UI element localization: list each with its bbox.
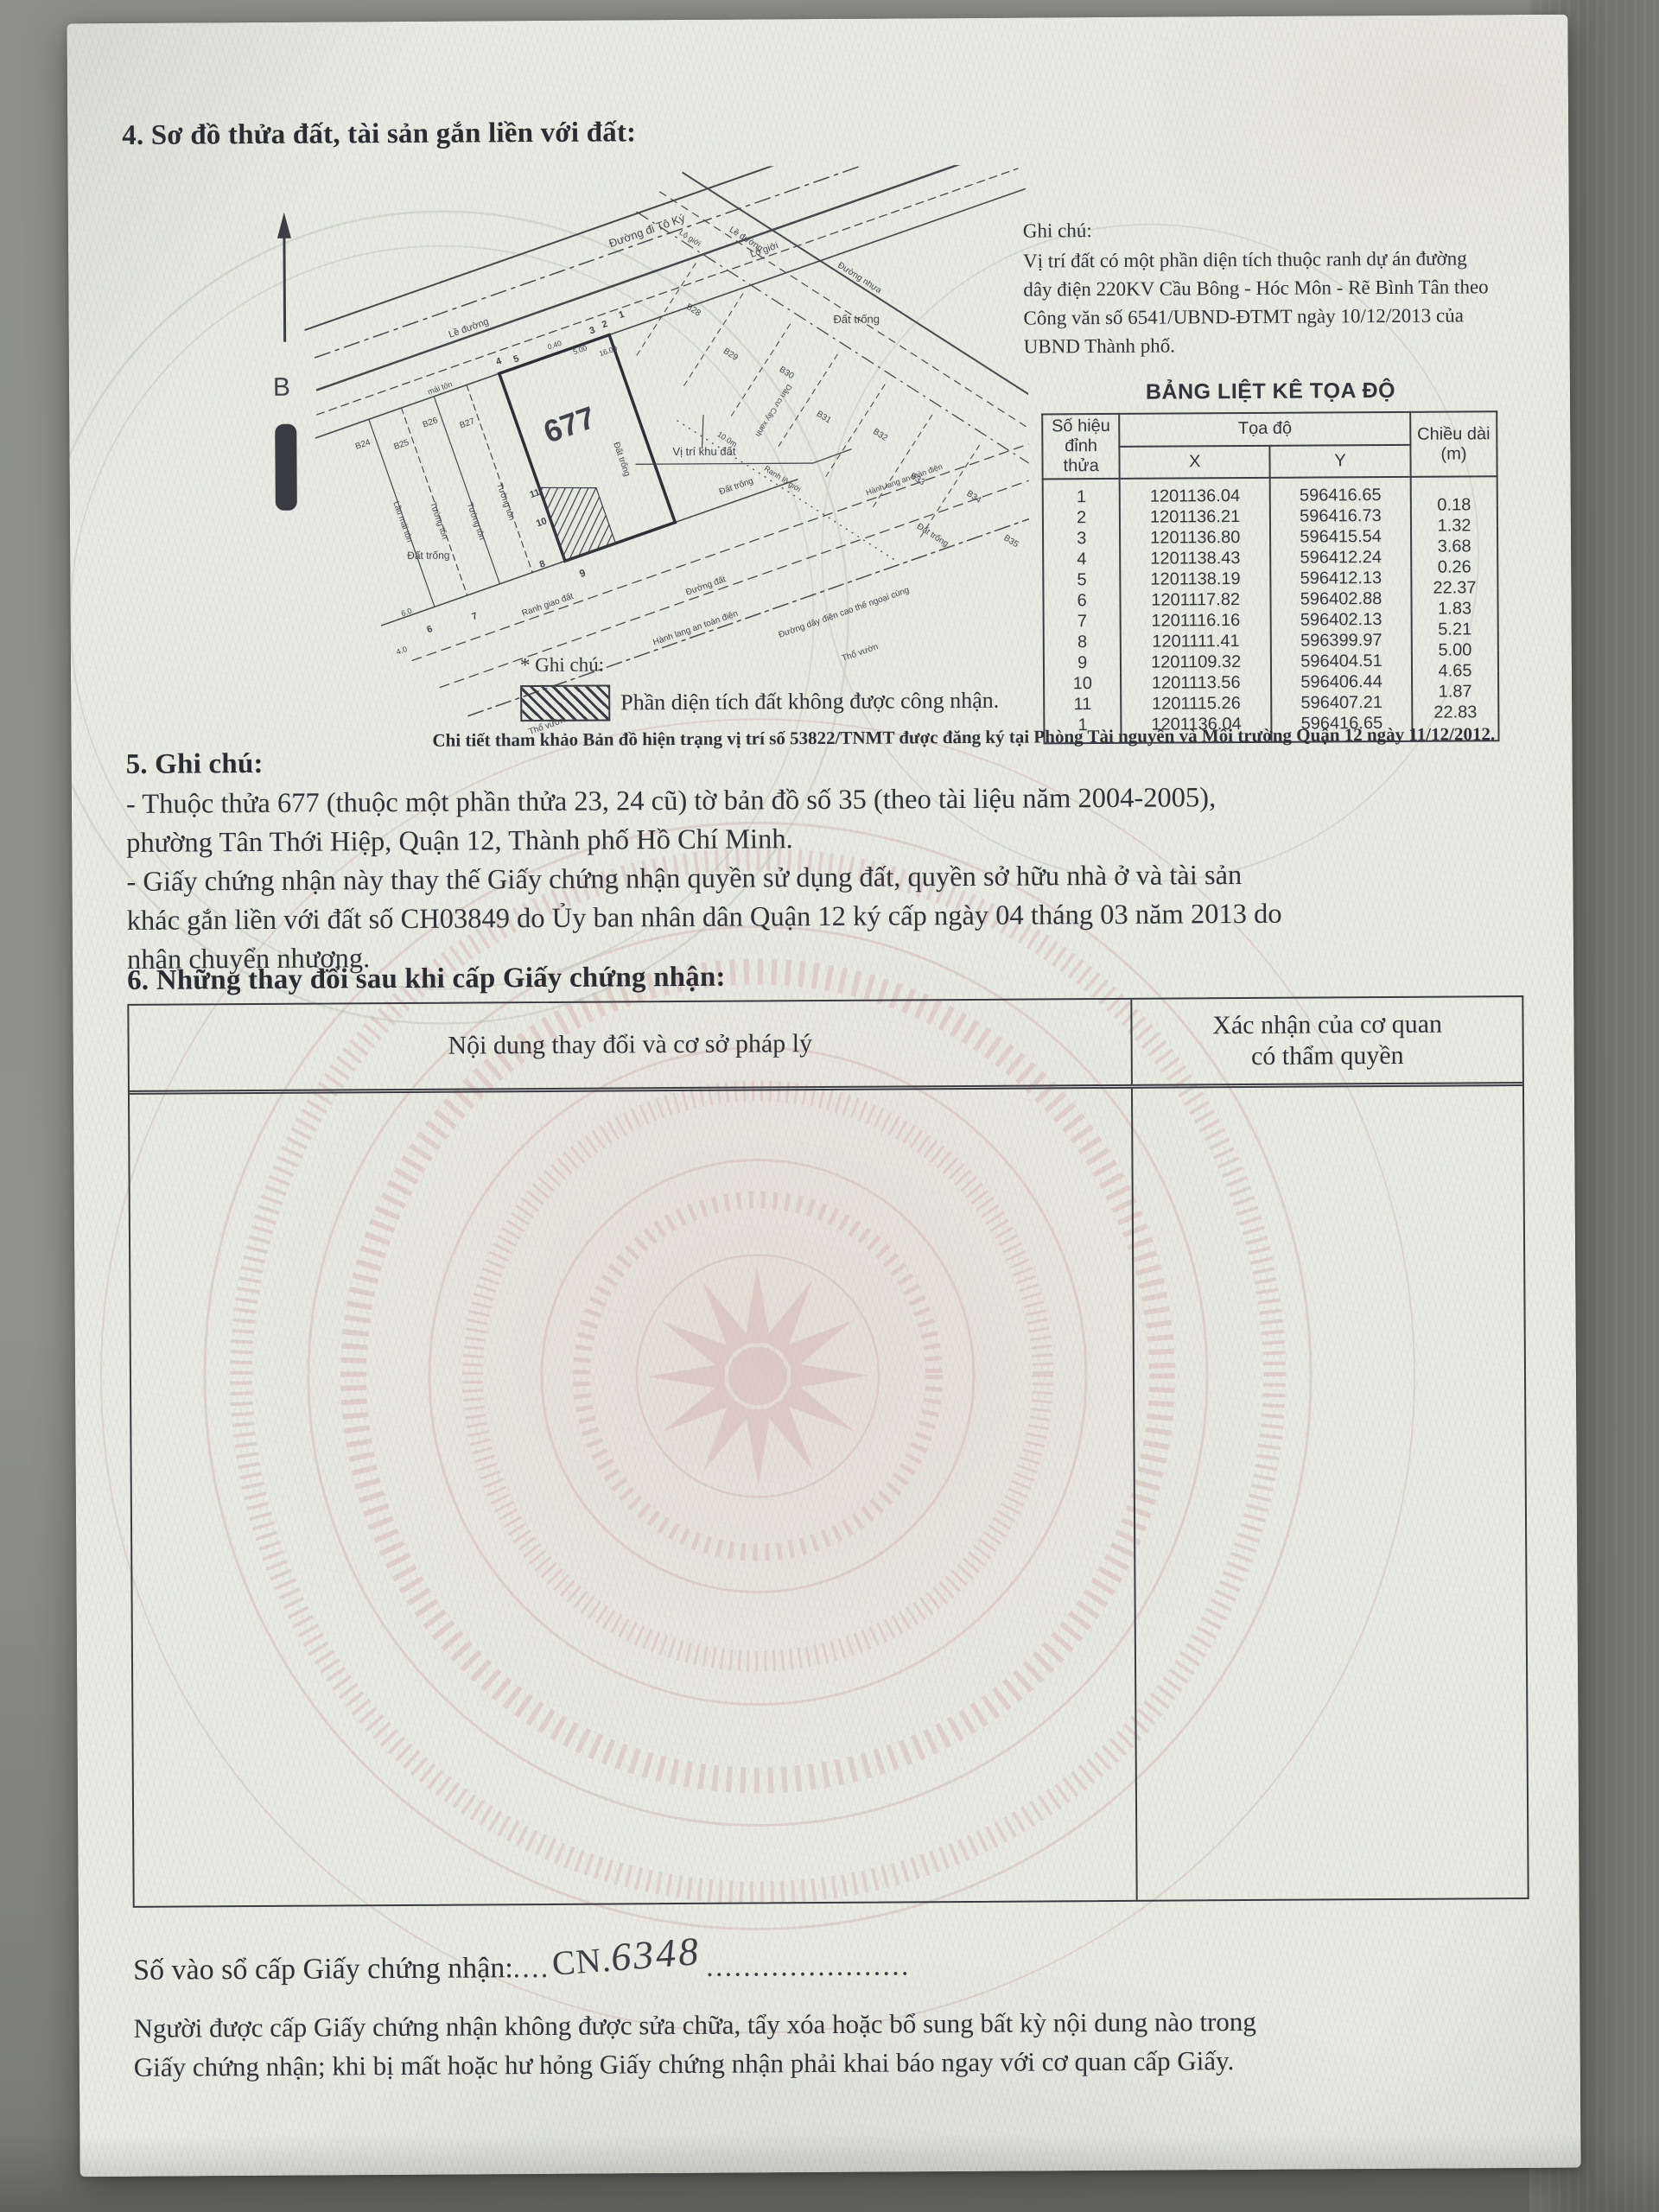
section4-title: 4. Sơ đồ thửa đất, tài sản gắn liền với … — [122, 117, 636, 152]
table-row: 51201138.19596412.130.26 — [1043, 567, 1497, 590]
vacant-land-label: Đất trống — [718, 475, 755, 497]
table-row: 11201136.04596416.65 — [1043, 476, 1497, 507]
map-scale-bar — [275, 424, 297, 511]
coordinate-table: Số hiệuđỉnh thửa Tọa độ Chiều dài(m) X Y… — [1041, 410, 1499, 744]
hatch-swatch-icon — [520, 685, 610, 722]
north-label: B — [273, 373, 290, 402]
north-arrow: B — [272, 213, 297, 511]
map-note-title: Ghi chú: — [1023, 213, 1533, 245]
plot-label: B32 — [871, 427, 889, 443]
vertex-label: 8 — [538, 558, 547, 569]
land-handover-label: Ranh giao đất — [520, 591, 575, 619]
table-row: 31201136.80596415.541.32 — [1043, 525, 1497, 549]
plot-label: B35 — [1002, 533, 1020, 550]
certificate-page: 4. Sơ đồ thửa đất, tài sản gắn liền với … — [67, 15, 1580, 2177]
vertex-label: 9 — [578, 567, 588, 581]
site-location-label: Vị trí khu đất — [672, 445, 735, 458]
plot-label: B25 — [392, 438, 410, 452]
table-row: 21201136.21596416.730.18 — [1043, 505, 1497, 528]
register-number-handwritten: CN.6348 — [550, 1928, 702, 1985]
plot-label: B34 — [964, 489, 982, 505]
vacant-land-label: Đất trống — [915, 521, 950, 549]
map-note-line: Công văn số 6541/UBND-ĐTMT ngày 10/12/20… — [1023, 301, 1533, 333]
vertex-label: 5 — [512, 353, 521, 365]
coordinate-table-title: BẢNG LIỆT KÊ TỌA ĐỘ — [1044, 378, 1497, 405]
changes-table: Nội dung thay đổi và cơ sở pháp lý Xác n… — [127, 995, 1529, 1908]
legend-hatch-label: Phần diện tích đất không được công nhận. — [620, 688, 999, 716]
col-y-header: Y — [1269, 444, 1410, 477]
vertex-label: 1 — [617, 309, 626, 321]
vertex-label: 6 — [426, 624, 435, 635]
map-note-line: UBND Thành phố. — [1024, 329, 1534, 361]
map-note-line: dây điện 220KV Cầu Bông - Hóc Môn - Rẽ B… — [1023, 272, 1533, 304]
road-boundary-label: Lộ giới — [677, 228, 702, 248]
vertex-label: 4 — [494, 356, 504, 368]
vertex-label: 3 — [588, 325, 597, 336]
plot-label: B30 — [778, 365, 796, 381]
warning-line: Giấy chứng nhận; khi bị mất hoặc hư hỏng… — [134, 2039, 1542, 2087]
dotted-leader: .... — [513, 1953, 550, 1984]
col-coord-header: Tọa độ — [1120, 412, 1411, 447]
map-note: Ghi chú: Vị trí đất có một phần diện tíc… — [1023, 213, 1534, 361]
section5-title: 5. Ghi chú: — [126, 748, 264, 781]
vertex-label: 7 — [471, 611, 480, 622]
plot-label: B27 — [459, 416, 477, 430]
map-note-line: Vị trí đất có một phần diện tích thuộc r… — [1023, 244, 1533, 276]
table-row: 41201138.43596412.243.68 — [1043, 546, 1497, 569]
section6-title: 6. Những thay đổi sau khi cấp Giấy chứng… — [127, 962, 726, 997]
table-row: 91201109.32596404.515.00 — [1044, 650, 1498, 673]
safety-corridor-label: Hành lang an toàn điện — [865, 462, 944, 497]
table-row: 101201113.56596406.444.65 — [1044, 671, 1498, 694]
structure-label: Lầu mái tôn — [391, 500, 414, 543]
register-label: Số vào sổ cấp Giấy chứng nhận: — [133, 1952, 513, 1986]
vacant-land-label: Đất trống — [833, 313, 880, 326]
table-row: 61201117.82596402.8822.37 — [1043, 588, 1497, 611]
unrecognized-area-hatch — [539, 470, 615, 561]
asphalt-road-label: Đường nhựa — [836, 261, 883, 296]
road-edge-label: Lề đường — [728, 225, 765, 254]
site-location-leader — [635, 449, 851, 465]
vacant-land-label: Đất trống — [407, 550, 449, 562]
dimension-label: 5.00 — [572, 343, 588, 356]
vertex-label: 2 — [601, 319, 609, 330]
col-x-header: X — [1120, 445, 1270, 479]
structure-label: Tường tôn — [428, 501, 449, 541]
dimension-label: 4.0 — [395, 645, 408, 657]
plot-label: B28 — [684, 302, 702, 319]
map-legend: * Ghi chú: Phần diện tích đất không được… — [520, 652, 999, 721]
changes-col2-header: Xác nhận của cơ quancó thẩm quyền — [1212, 1009, 1442, 1073]
changes-col1-header: Nội dung thay đổi và cơ sở pháp lý — [448, 1028, 812, 1062]
safety-corridor-label: Hành lang an toàn điện — [652, 609, 739, 648]
changes-confirmation-cell — [1133, 1086, 1528, 1900]
plot-label: B24 — [354, 437, 372, 451]
structure-label: Tường tôn — [494, 482, 516, 522]
plot-label: B31 — [815, 410, 833, 426]
table-row: 81201111.41596399.975.21 — [1044, 629, 1498, 652]
dotted-leader: ...................... — [706, 1950, 911, 1982]
col-length-header: Chiều dài(m) — [1410, 411, 1497, 477]
dimension-label: 0.40 — [546, 339, 563, 352]
changes-content-cell — [130, 1089, 1138, 1906]
certificate-warning-note: Người được cấp Giấy chứng nhận không đượ… — [133, 2000, 1542, 2087]
road-name-label: Đường đi Tô Ký — [607, 211, 687, 250]
vacant-land-label: Đất trống — [611, 441, 632, 478]
plot-label: B26 — [422, 416, 440, 429]
concrete-background-bottom — [0, 2134, 1659, 2212]
plot-label: B29 — [721, 346, 740, 363]
section5-notes: - Thuộc thửa 677 (thuộc một phần thửa 23… — [126, 777, 1535, 980]
dimension-label: 6.0 — [400, 607, 413, 619]
plot-677-number: 677 — [539, 399, 600, 450]
col-vertex-header: Số hiệuđỉnh thửa — [1042, 414, 1120, 480]
table-row: 71201116.16596402.131.83 — [1044, 608, 1498, 632]
power-line-label: Đường dây điện cao thế ngoại cùng — [777, 585, 910, 640]
legend-title: * Ghi chú: — [520, 652, 999, 677]
vertex-label: 10 — [535, 516, 549, 529]
register-number-line: Số vào sổ cấp Giấy chứng nhận:....CN.634… — [133, 1938, 911, 1988]
residential-greenery-label: Dân cư Cây xanh — [753, 383, 793, 438]
table-row: 111201115.26596407.211.87 — [1044, 691, 1498, 715]
structure-label: Tường tôn — [465, 501, 486, 541]
